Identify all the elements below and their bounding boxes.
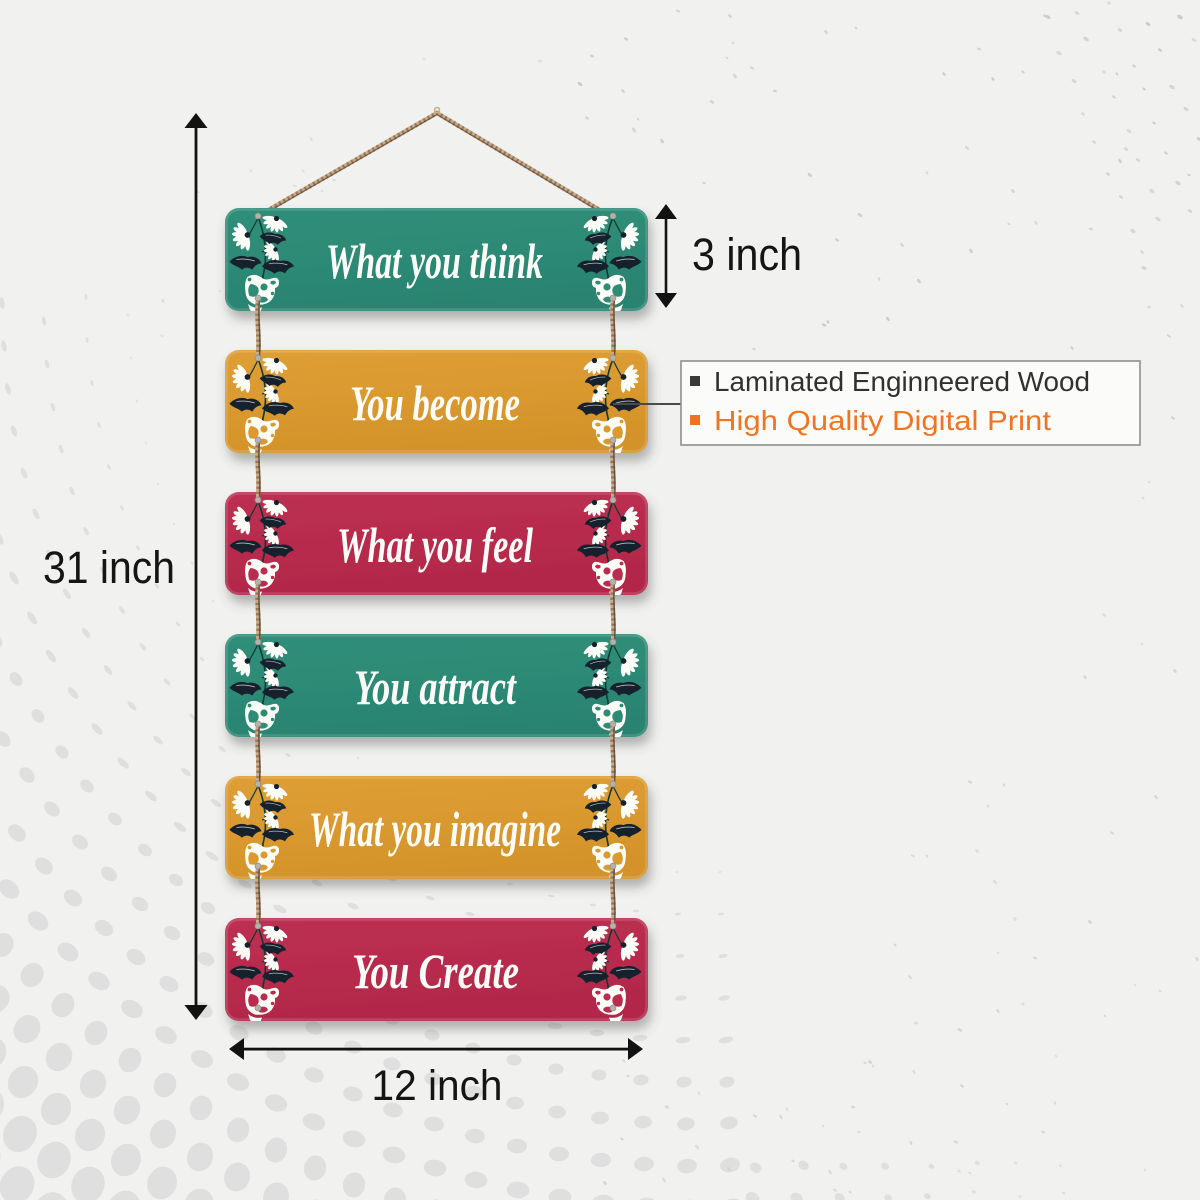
svg-text:3 inch: 3 inch: [692, 229, 802, 280]
svg-text:You become: You become: [350, 375, 520, 431]
svg-text:Laminated Enginneered Wood: Laminated Enginneered Wood: [714, 366, 1090, 397]
svg-text:What you feel: What you feel: [337, 517, 533, 573]
svg-text:What you think: What you think: [326, 233, 543, 289]
svg-text:What you imagine: What you imagine: [309, 801, 561, 857]
svg-text:You attract: You attract: [354, 659, 518, 715]
svg-text:12 inch: 12 inch: [372, 1062, 503, 1110]
svg-text:High Quality Digital Print: High Quality Digital Print: [714, 405, 1051, 436]
svg-text:You Create: You Create: [352, 943, 519, 999]
svg-text:31 inch: 31 inch: [43, 542, 175, 593]
